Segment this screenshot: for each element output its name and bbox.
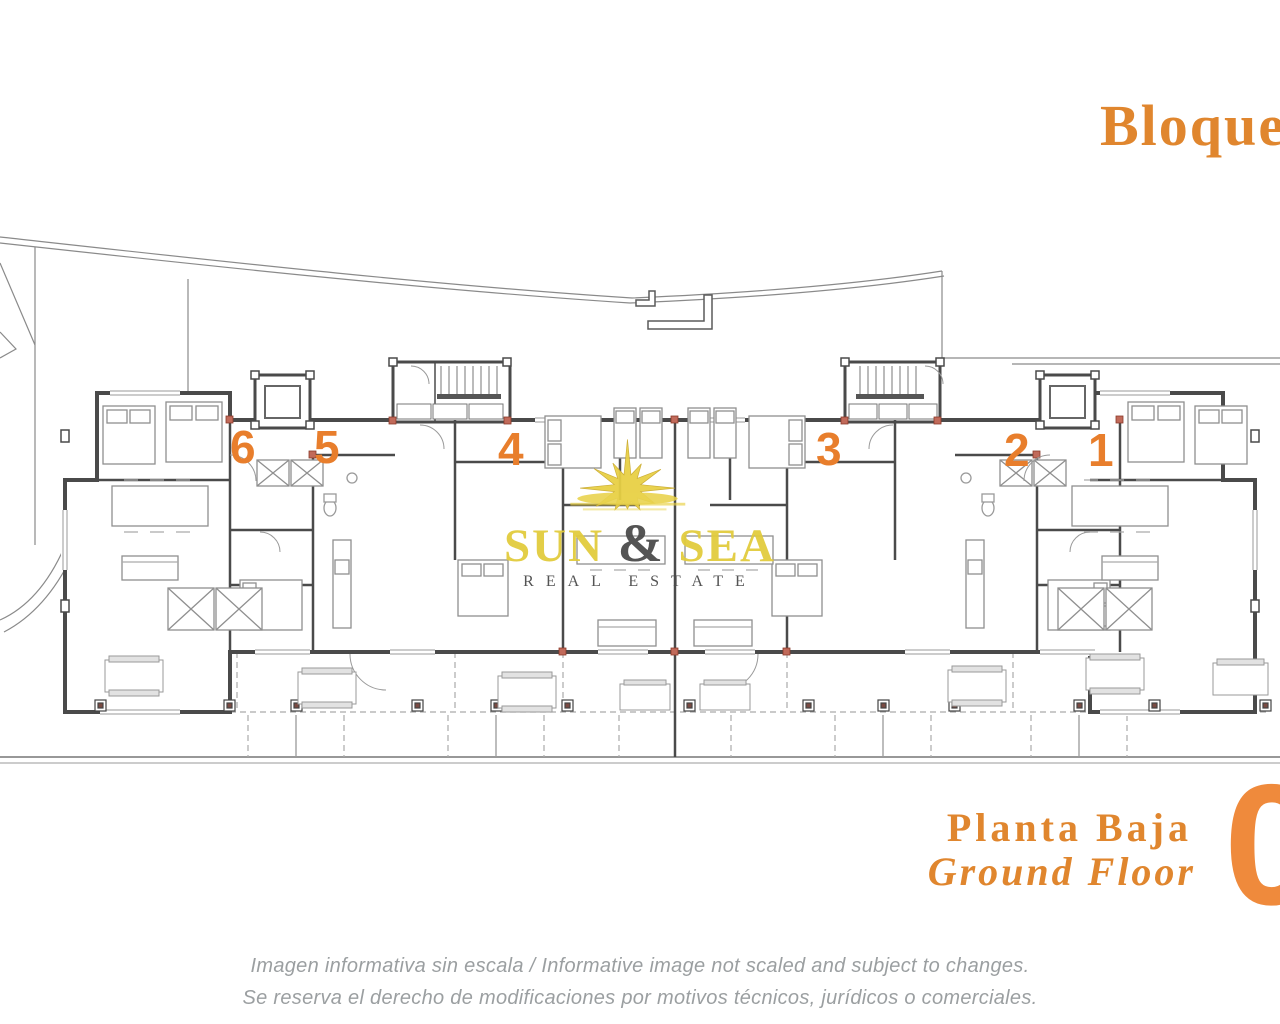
watermark-ampersand: & bbox=[618, 513, 665, 573]
watermark-word1: SUN bbox=[504, 520, 604, 572]
unit-label-6: 6 bbox=[230, 424, 256, 470]
block-title: Bloque bbox=[1100, 92, 1280, 159]
unit-label-2: 2 bbox=[1004, 427, 1030, 473]
watermark: SUN & SEA REAL ESTATE bbox=[500, 438, 780, 591]
sunburst-icon bbox=[540, 438, 740, 516]
boundary-notch bbox=[636, 291, 712, 329]
floor-plan-page: { "header": { "block_title": "Bloque" },… bbox=[0, 0, 1280, 1024]
watermark-subtitle: REAL ESTATE bbox=[500, 573, 780, 591]
floor-title-es: Planta Baja bbox=[947, 804, 1192, 851]
ground-line bbox=[0, 757, 1280, 763]
elevator-right bbox=[1036, 371, 1099, 429]
floor-title-en: Ground Floor bbox=[928, 848, 1196, 895]
elevator-left bbox=[251, 371, 314, 429]
unit-label-3: 3 bbox=[816, 426, 842, 472]
stairwell-left bbox=[389, 358, 511, 422]
unit-label-1: 1 bbox=[1088, 427, 1114, 473]
watermark-word2: SEA bbox=[679, 520, 776, 572]
disclaimer: Imagen informativa sin escala / Informat… bbox=[95, 950, 1185, 1014]
stairwell-right bbox=[841, 358, 944, 422]
watermark-name: SUN & SEA bbox=[500, 516, 780, 571]
disclaimer-line-2: Se reserva el derecho de modificaciones … bbox=[95, 982, 1185, 1014]
terrace-party-walls bbox=[296, 715, 1079, 757]
disclaimer-line-1: Imagen informativa sin escala / Informat… bbox=[95, 950, 1185, 982]
unit-label-5: 5 bbox=[314, 424, 340, 470]
floor-number-badge: 0 bbox=[1224, 770, 1280, 920]
